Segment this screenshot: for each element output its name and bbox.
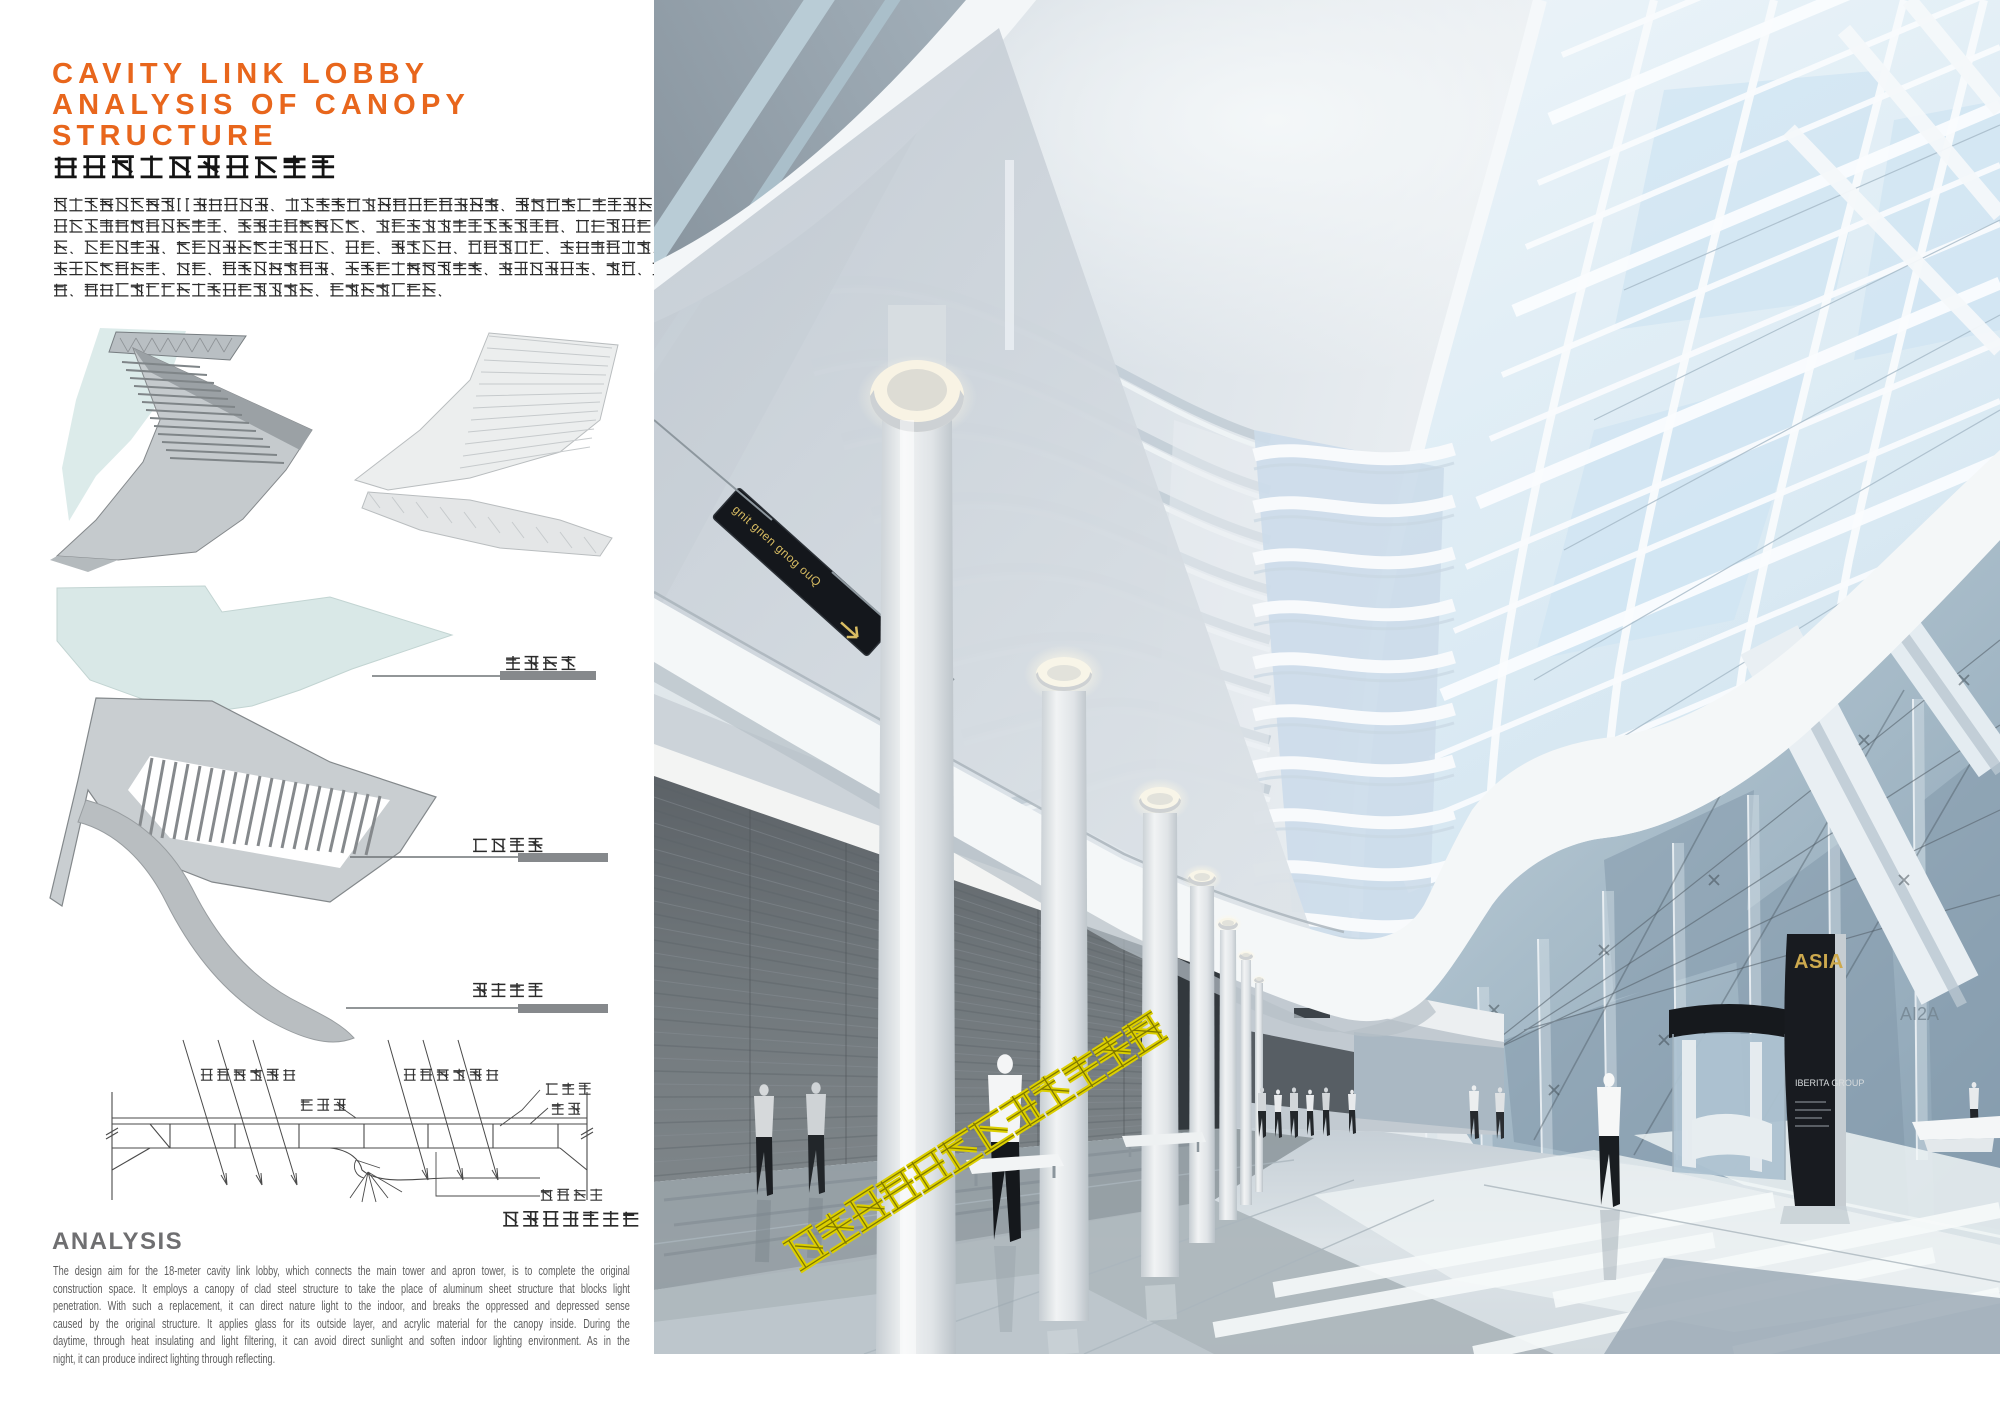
svg-text:IBERITA GROUP: IBERITA GROUP xyxy=(1795,1078,1864,1088)
svg-text:ASIA: ASIA xyxy=(1794,951,1844,973)
svg-text:AI2A: AI2A xyxy=(1900,1004,1939,1024)
